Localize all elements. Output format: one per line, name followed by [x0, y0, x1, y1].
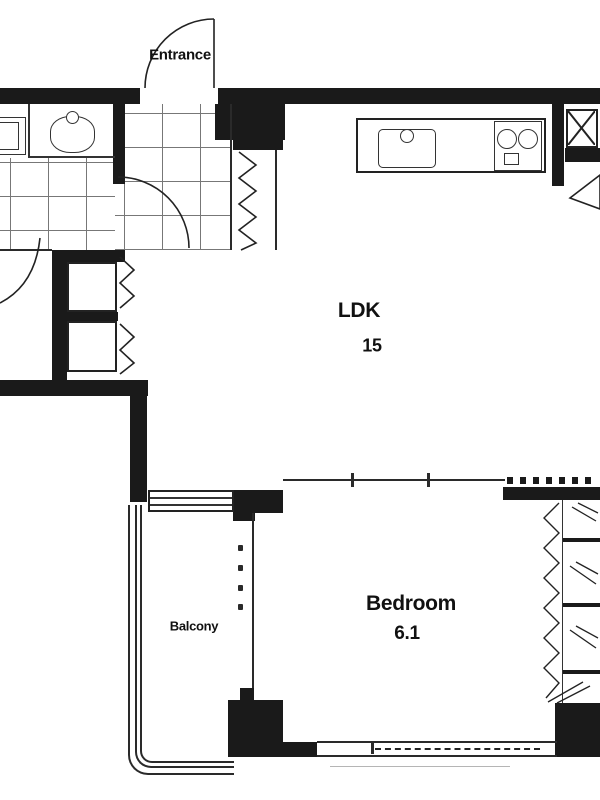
plan-linework	[0, 0, 600, 800]
washroom-door-arc	[118, 177, 189, 248]
bedroom-label: Bedroom	[366, 592, 456, 616]
floor-plan: Entrance LDK 15 Bedroom 6.1 Balcony	[0, 0, 600, 800]
hall-closet-folding-door-icon	[120, 257, 134, 308]
ldk-area-label: 15	[362, 336, 381, 357]
entry-closet-folding-door-icon	[239, 152, 256, 250]
bedroom-closet-folding-door-icon	[544, 503, 559, 698]
balcony-label: Balcony	[170, 619, 218, 634]
closet-hatch-lines	[548, 503, 598, 703]
bedroom-area-label: 6.1	[394, 623, 420, 645]
ldk-label: LDK	[338, 299, 380, 323]
bathroom-door-arc	[0, 238, 40, 303]
entrance-label: Entrance	[149, 47, 211, 64]
hall-closet-folding-door-icon	[120, 324, 134, 374]
right-door-swing-icon	[570, 175, 600, 209]
